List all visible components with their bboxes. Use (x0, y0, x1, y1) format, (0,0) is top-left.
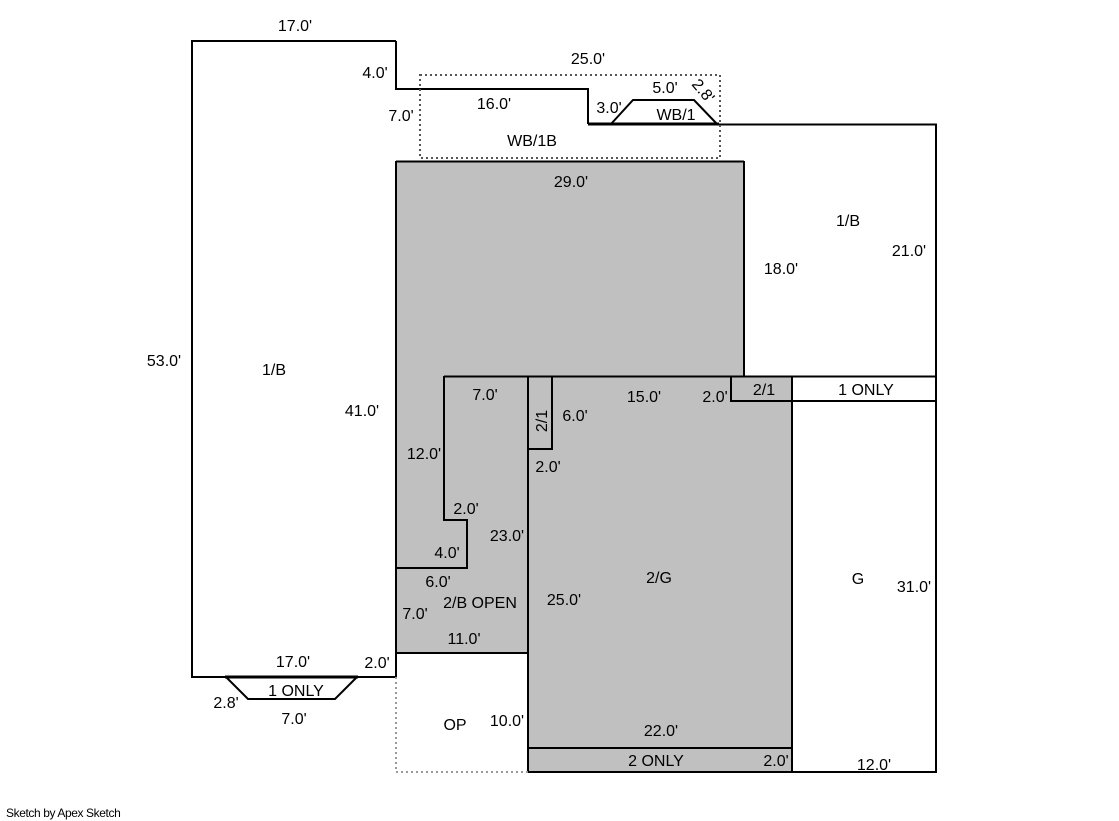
svg-text:2.0': 2.0' (763, 753, 788, 770)
svg-text:31.0': 31.0' (897, 579, 931, 596)
svg-text:53.0': 53.0' (147, 353, 181, 370)
svg-text:22.0': 22.0' (644, 723, 678, 740)
svg-text:2.0': 2.0' (364, 655, 389, 672)
svg-text:2/G: 2/G (646, 570, 672, 587)
svg-text:6.0': 6.0' (562, 408, 587, 425)
svg-text:7.0': 7.0' (472, 387, 497, 404)
svg-text:2/1: 2/1 (534, 410, 551, 432)
svg-text:17.0': 17.0' (278, 18, 312, 35)
svg-text:7.0': 7.0' (388, 108, 413, 125)
svg-text:7.0': 7.0' (281, 711, 306, 728)
svg-text:5.0': 5.0' (652, 80, 677, 97)
svg-text:21.0': 21.0' (892, 243, 926, 260)
svg-text:2/B OPEN: 2/B OPEN (443, 595, 517, 612)
svg-text:2.0': 2.0' (535, 459, 560, 476)
svg-text:12.0': 12.0' (407, 446, 441, 463)
svg-text:1 ONLY: 1 ONLY (268, 683, 324, 700)
svg-text:OP: OP (443, 717, 466, 734)
svg-text:17.0': 17.0' (276, 654, 310, 671)
svg-text:41.0': 41.0' (345, 403, 379, 420)
svg-text:1 ONLY: 1 ONLY (838, 382, 894, 399)
svg-text:2.0': 2.0' (453, 501, 478, 518)
svg-text:1/B: 1/B (836, 213, 860, 230)
svg-text:3.0': 3.0' (596, 100, 621, 117)
svg-text:6.0': 6.0' (425, 574, 450, 591)
svg-text:G: G (852, 571, 864, 588)
svg-text:11.0': 11.0' (447, 631, 480, 648)
svg-text:10.0': 10.0' (490, 713, 524, 730)
svg-text:4.0': 4.0' (434, 545, 459, 562)
svg-text:15.0': 15.0' (627, 389, 661, 406)
svg-text:4.0': 4.0' (362, 65, 387, 82)
svg-text:2/1: 2/1 (753, 382, 775, 399)
svg-text:16.0': 16.0' (477, 96, 511, 113)
svg-text:25.0': 25.0' (547, 592, 581, 609)
svg-text:2.8': 2.8' (213, 695, 238, 712)
svg-text:7.0': 7.0' (402, 606, 427, 623)
svg-text:18.0': 18.0' (764, 261, 798, 278)
svg-text:25.0': 25.0' (571, 51, 605, 68)
svg-text:23.0': 23.0' (490, 528, 524, 545)
svg-text:12.0': 12.0' (857, 757, 891, 774)
svg-text:1/B: 1/B (262, 362, 286, 379)
svg-text:2.0': 2.0' (702, 389, 727, 406)
svg-text:WB/1: WB/1 (656, 107, 695, 124)
svg-text:29.0': 29.0' (554, 174, 588, 191)
svg-text:WB/1B: WB/1B (507, 133, 557, 150)
svg-text:2 ONLY: 2 ONLY (628, 753, 684, 770)
svg-text:Sketch by Apex Sketch: Sketch by Apex Sketch (6, 806, 120, 820)
